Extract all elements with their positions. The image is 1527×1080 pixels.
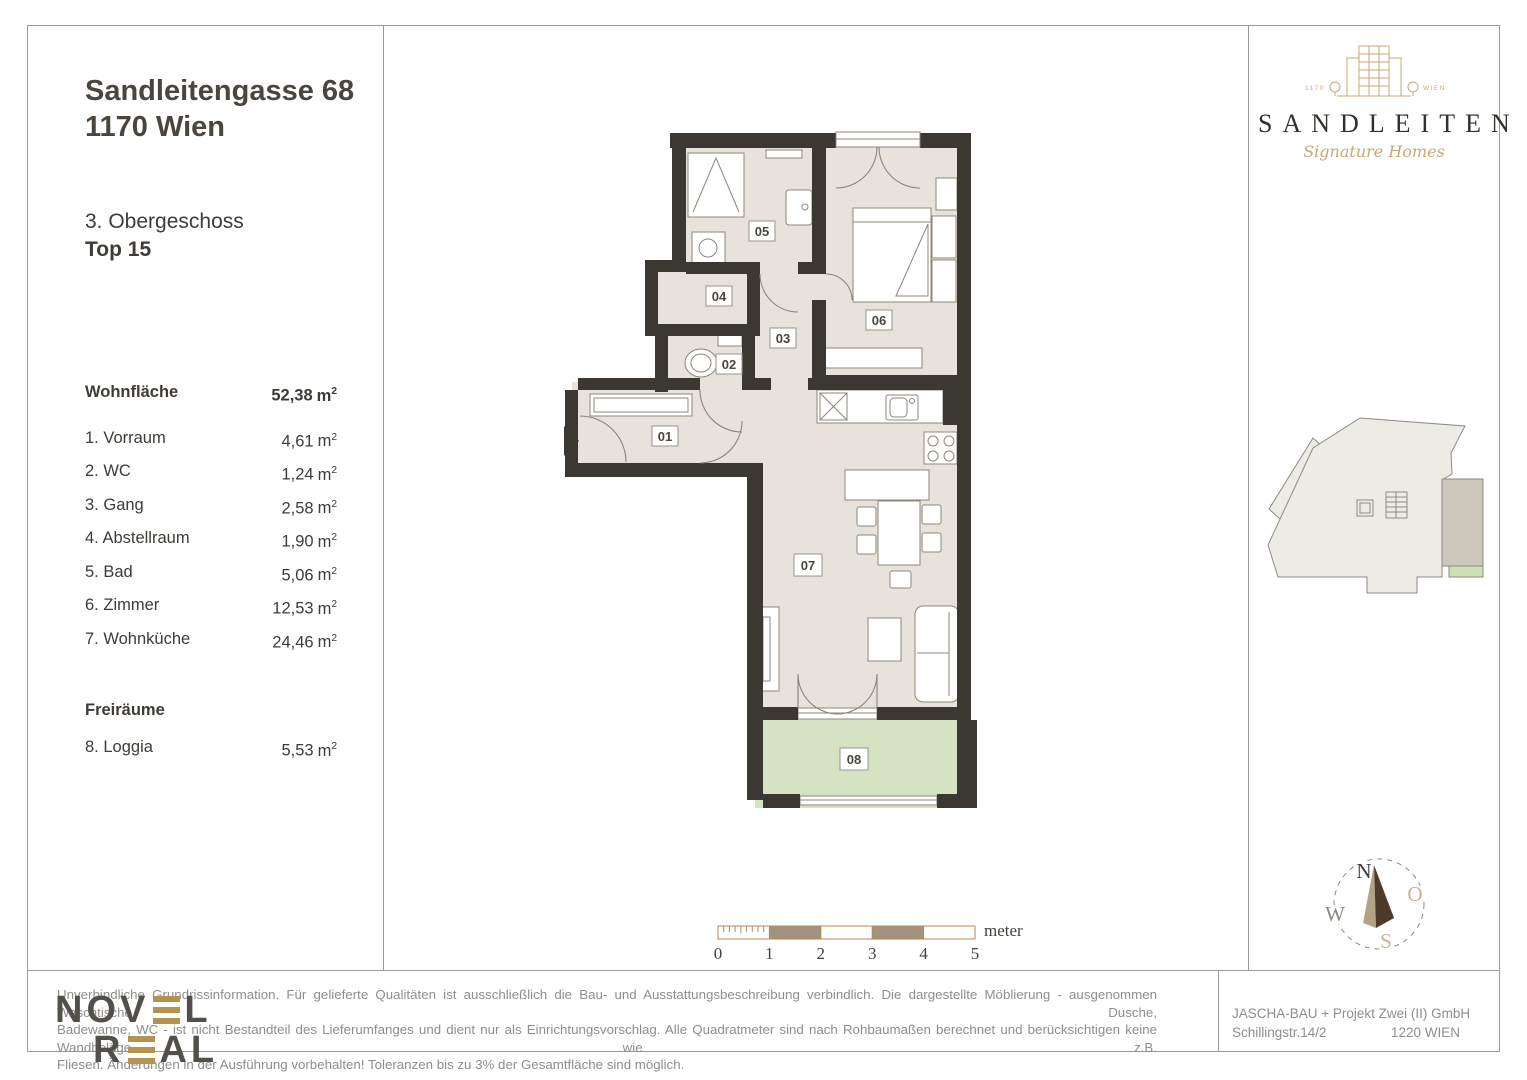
bath-shelf (766, 150, 802, 158)
logo-letters: R (93, 1029, 124, 1072)
chair (922, 505, 941, 524)
compass-rose: N O S W (1316, 852, 1442, 960)
compass-north-label: N (1356, 859, 1371, 883)
total-area-label: Wohnfläche (85, 377, 178, 411)
site-unit-loggia (1449, 566, 1483, 577)
floorplan-drawing: 01 02 03 04 05 06 07 08 (560, 120, 990, 820)
company-street: Schillingstr.14/2 (1232, 1023, 1327, 1042)
scale-tick-1: 1 (765, 944, 774, 963)
chair (857, 507, 876, 526)
scale-bar: 0 1 2 3 4 5 meter (712, 918, 1042, 968)
area-row: 1. Vorraum 4,61m2 (85, 423, 337, 457)
page-title: Sandleitengasse 68 1170 Wien (85, 73, 354, 145)
room-label-05: 05 (755, 224, 769, 239)
frame-right-line (1499, 25, 1500, 1051)
room-label-03: 03 (776, 331, 790, 346)
room-label-01: 01 (658, 429, 672, 444)
brand-tagline: Signature Homes (1248, 142, 1500, 161)
disclaimer-line: Fliesen. Änderungen in der Ausführung vo… (57, 1056, 1157, 1074)
company-city: 1220 WIEN (1391, 1023, 1460, 1042)
scale-tick-3: 3 (868, 944, 877, 963)
site-unit-highlight (1442, 479, 1483, 566)
scale-tick-5: 5 (971, 944, 980, 963)
site-plan (1262, 408, 1494, 603)
logo-e-glyph (128, 1033, 155, 1067)
brand-city-text: WIEN (1423, 85, 1446, 92)
disclaimer-line: Unverbindliche Grundrissinformation. Für… (57, 986, 1157, 1021)
info-panel: Sandleitengasse 68 1170 Wien 3. Obergesc… (27, 25, 383, 970)
disclaimer-line: Badewanne, WC - ist nicht Bestandteil de… (57, 1021, 1157, 1056)
disclaimer-text: Unverbindliche Grundrissinformation. Für… (57, 986, 1157, 1074)
brand-block: 1170 WIEN SANDLEITEN Signature Homes (1248, 40, 1500, 161)
nightstand (932, 260, 956, 302)
floor-label: 3. Obergeschoss (85, 208, 244, 236)
area-row: 5. Bad 5,06m2 (85, 557, 337, 591)
dining-table (878, 501, 920, 565)
chair (857, 535, 876, 554)
logo-letters: L (184, 989, 211, 1032)
bedroom-wardrobe (936, 178, 957, 210)
logo-letters: NOV (55, 989, 149, 1032)
sideboard (818, 348, 922, 368)
total-area-row: Wohnfläche 52,38m2 (85, 377, 337, 411)
divider-left-panel (383, 25, 384, 970)
free-areas-title: Freiräume (85, 701, 337, 720)
area-table: Wohnfläche 52,38m2 1. Vorraum 4,61m2 2. … (85, 377, 337, 766)
scale-tick-2: 2 (817, 944, 826, 963)
logo-letters: AL (159, 1029, 218, 1072)
sofa (915, 606, 959, 702)
compass-east-label: O (1407, 882, 1422, 906)
chair (922, 533, 941, 552)
logo-e-glyph (153, 993, 180, 1027)
area-row: 6. Zimmer 12,53m2 (85, 590, 337, 624)
area-row: 3. Gang 2,58m2 (85, 490, 337, 524)
brand-building-icon: 1170 WIEN (1299, 40, 1449, 102)
washing-machine (692, 232, 725, 264)
site-building-outline (1268, 418, 1465, 593)
address-line2: 1170 Wien (85, 109, 354, 145)
room-label-07: 07 (801, 558, 815, 573)
floorplan-page: Sandleitengasse 68 1170 Wien 3. Obergesc… (0, 0, 1527, 1080)
windows (836, 132, 920, 147)
brand-year-text: 1170 (1305, 85, 1325, 92)
scale-tick-0: 0 (714, 944, 723, 963)
shower (688, 153, 744, 217)
brand-name: SANDLEITEN (1248, 109, 1500, 139)
scale-unit-label: meter (984, 921, 1023, 940)
area-row: 4. Abstellraum 1,90m2 (85, 523, 337, 557)
company-info: JASCHA-BAU + Projekt Zwei (II) GmbH Schi… (1232, 1004, 1470, 1042)
hall-wardrobe (590, 394, 692, 416)
area-row-loggia: 8. Loggia 5,53m2 (85, 732, 337, 766)
address-line1: Sandleitengasse 68 (85, 73, 354, 109)
footer-top-line (27, 970, 1500, 971)
room-label-04: 04 (712, 289, 727, 304)
chair (890, 571, 911, 588)
room-label-06: 06 (872, 313, 886, 328)
area-row: 2. WC 1,24m2 (85, 456, 337, 490)
coffee-table (868, 618, 901, 661)
compass-west-label: W (1325, 902, 1345, 926)
novel-real-logo: NOV L R AL (55, 990, 218, 1070)
company-name: JASCHA-BAU + Projekt Zwei (II) GmbH (1232, 1004, 1470, 1023)
room-label-08: 08 (847, 752, 861, 767)
scale-tick-4: 4 (919, 944, 928, 963)
nightstand (932, 216, 956, 258)
kitchen-island (845, 470, 929, 500)
unit-label: Top 15 (85, 236, 244, 264)
room-label-02: 02 (722, 357, 736, 372)
footer-divider (1218, 970, 1219, 1051)
toilet-bowl (685, 349, 717, 377)
floor-unit-block: 3. Obergeschoss Top 15 (85, 208, 244, 264)
compass-south-label: S (1380, 929, 1392, 953)
divider-right-panel (1248, 25, 1249, 970)
area-row: 7. Wohnküche 24,46m2 (85, 624, 337, 658)
